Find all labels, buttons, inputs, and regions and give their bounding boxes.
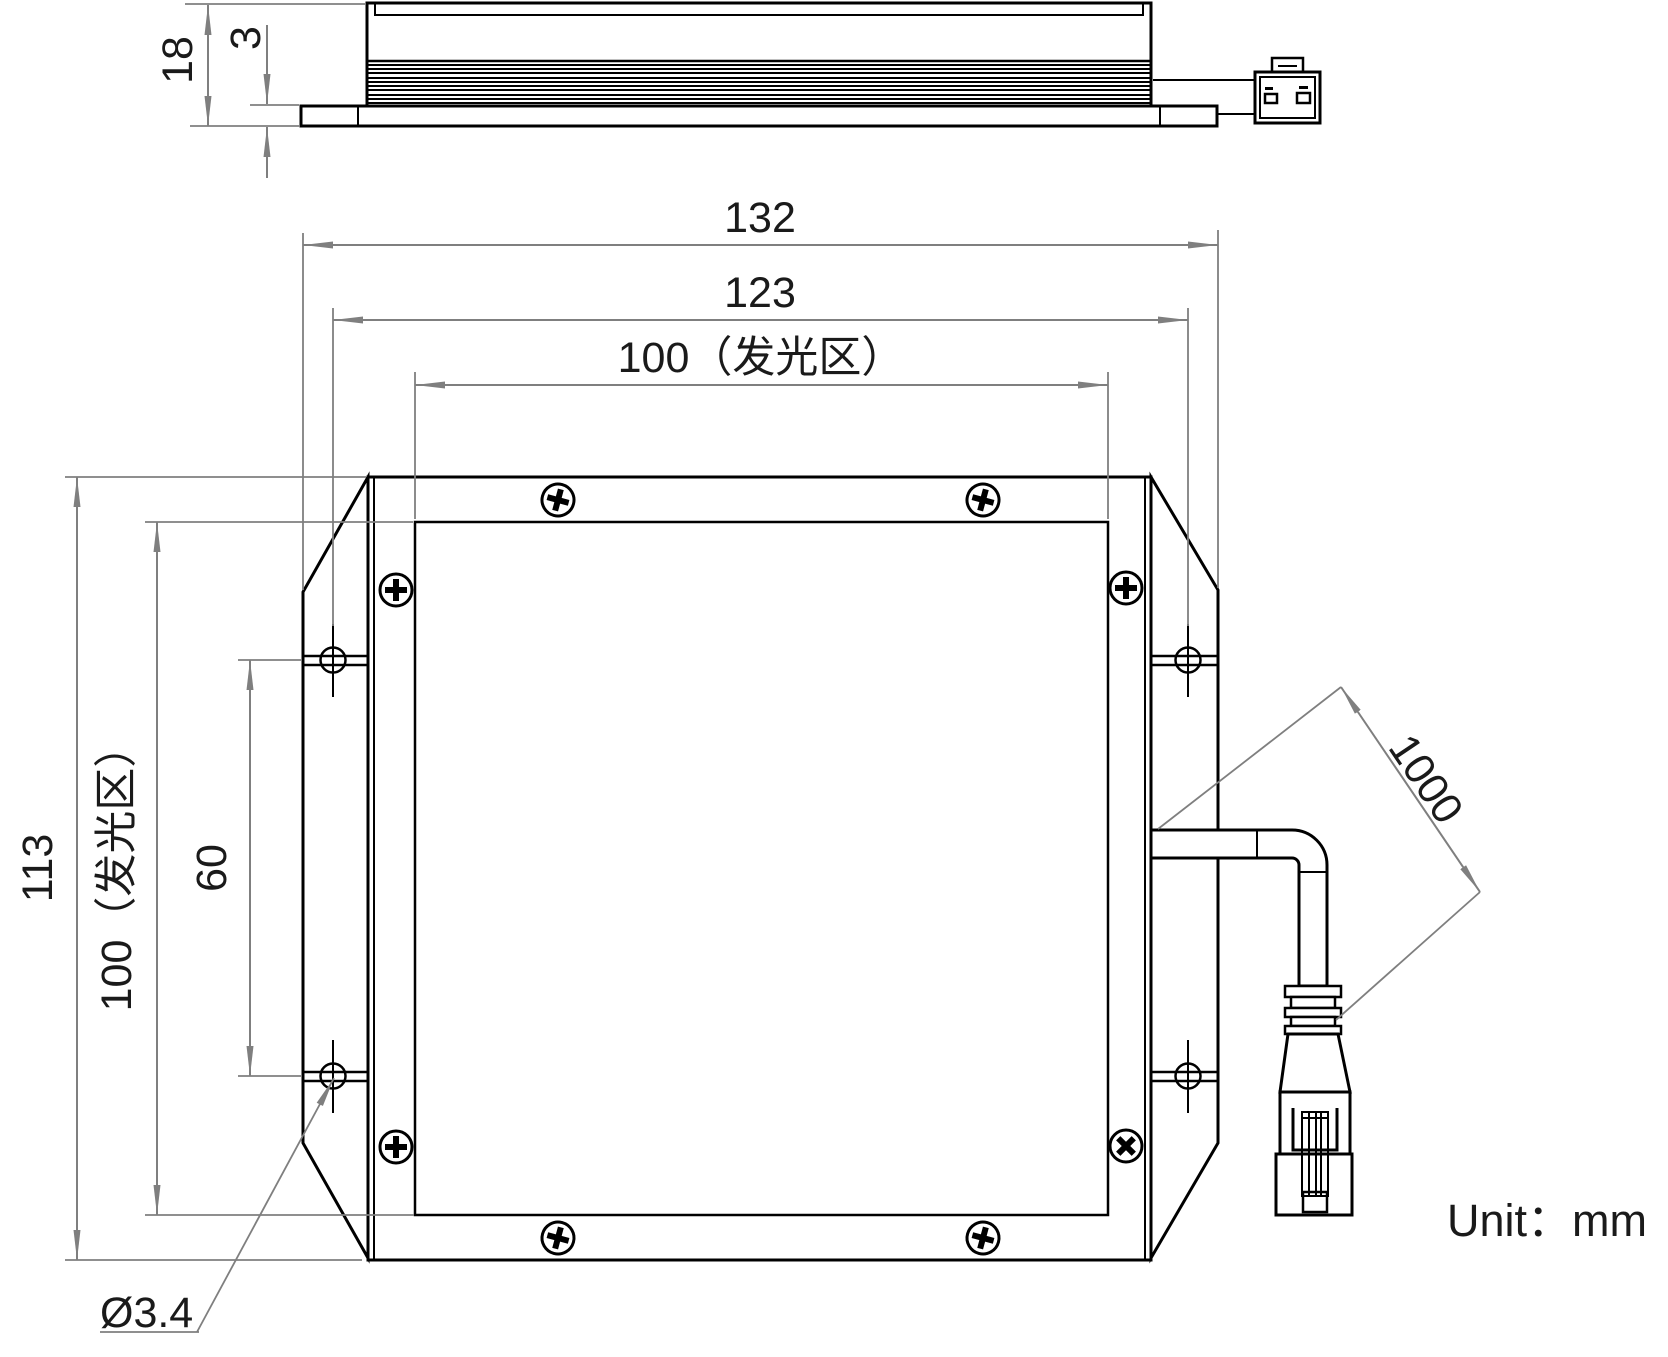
dim-label-height-glow: 100（发光区） bbox=[93, 725, 141, 1012]
phillips-screw-icon bbox=[380, 1131, 412, 1163]
side-connector bbox=[1255, 58, 1320, 123]
phillips-screw-icon bbox=[380, 574, 412, 606]
unit-note: Unit：mm bbox=[1447, 1195, 1647, 1246]
dim-label-width-holes: 123 bbox=[724, 269, 796, 317]
dim-label-side-base: 3 bbox=[222, 26, 270, 50]
phillips-screw-icon bbox=[1110, 572, 1142, 604]
dim-label-height-overall: 113 bbox=[14, 834, 62, 903]
callout-hole-diameter: Ø3.4 bbox=[100, 1078, 334, 1337]
left-bracket bbox=[303, 477, 368, 1258]
dimension-drawing: 18 3 bbox=[0, 0, 1668, 1357]
dim-label-cable-length: 1000 bbox=[1379, 726, 1472, 832]
technical-drawing-page: 18 3 bbox=[0, 0, 1668, 1357]
dim-holes-vertical: 60 bbox=[188, 660, 301, 1076]
connector-cap bbox=[1276, 1154, 1352, 1215]
side-view: 18 3 bbox=[154, 3, 1320, 178]
dim-label-hole-diameter: Ø3.4 bbox=[100, 1289, 193, 1337]
dim-label-width-overall: 132 bbox=[724, 194, 796, 242]
right-bracket bbox=[1151, 477, 1218, 1258]
side-flange bbox=[301, 106, 1217, 126]
dim-label-width-glow: 100（发光区） bbox=[618, 334, 905, 382]
dim-label-side-height: 18 bbox=[154, 36, 202, 84]
dim-label-holes-vertical: 60 bbox=[188, 844, 236, 892]
cable-connector bbox=[1276, 986, 1352, 1215]
front-view: 132 123 100（发光区） 113 100（发光区） bbox=[14, 194, 1480, 1337]
strain-relief bbox=[1285, 986, 1341, 1034]
emitting-area bbox=[415, 522, 1108, 1215]
connector-boot bbox=[1280, 1034, 1350, 1092]
